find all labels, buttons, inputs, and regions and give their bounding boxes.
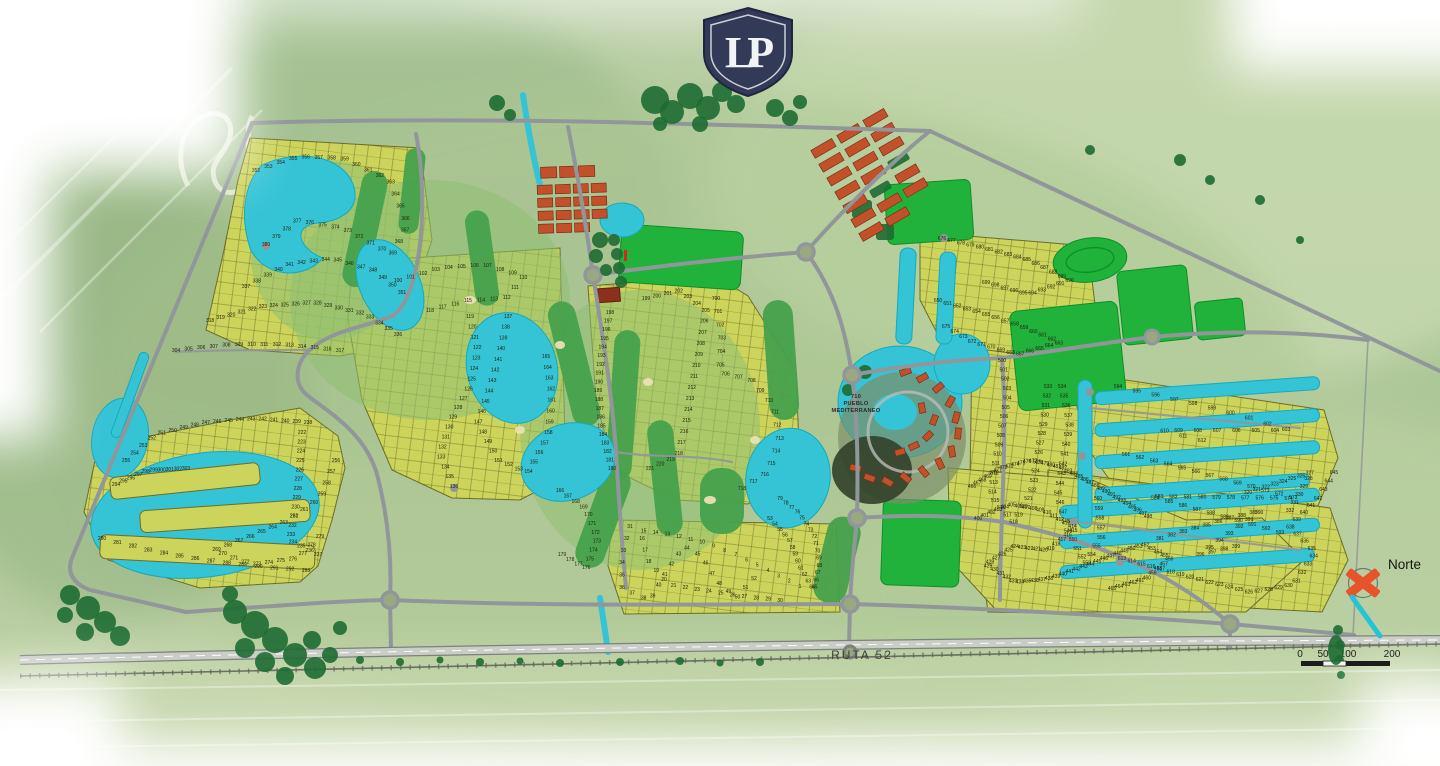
- lot-number: 112: [503, 295, 511, 301]
- lot-number: 308: [222, 342, 231, 348]
- lot-number: 422: [1025, 546, 1034, 552]
- lot-number: 123: [472, 356, 481, 362]
- lot-number: 251: [158, 431, 167, 437]
- lot-number: 569: [1233, 480, 1242, 486]
- lot-number: 615: [1137, 561, 1146, 567]
- lot-number: 57: [787, 538, 793, 544]
- flag-marker: [624, 250, 627, 261]
- lot-number: 76: [795, 510, 801, 516]
- lot-number: 25: [718, 591, 724, 597]
- lot-number: 521: [1024, 496, 1033, 502]
- lot-number: 624: [1225, 585, 1234, 591]
- lot-number: 9: [712, 544, 715, 550]
- lot-number: 532: [1043, 394, 1052, 400]
- lot-number: 142: [491, 367, 500, 373]
- lot-number: 140: [497, 346, 506, 352]
- lot-number: 214: [684, 407, 693, 413]
- lot-number: 71: [813, 541, 819, 547]
- lot-number: 113: [490, 297, 498, 303]
- lot-number: 41: [662, 572, 668, 578]
- lot-number: 187: [596, 406, 605, 412]
- lot-number: 365: [396, 204, 405, 210]
- lot-number: 303: [182, 466, 191, 472]
- lot-number: 243: [247, 416, 256, 422]
- lot-number: 324: [270, 303, 279, 309]
- lot-number: 713: [775, 436, 784, 442]
- lot-number: 172: [591, 530, 600, 536]
- lot-number: 658: [1011, 322, 1020, 328]
- lot-number: 23: [694, 587, 700, 593]
- lot-number: 136: [450, 484, 459, 490]
- lot-number: 1: [799, 584, 802, 590]
- lot-number: 539: [1064, 432, 1073, 438]
- lot-number: 157: [540, 440, 549, 446]
- lot-number: 705: [716, 362, 725, 368]
- lot-number: 696: [1010, 288, 1019, 294]
- lot-number: 220: [656, 462, 665, 468]
- lot-number: 366: [401, 216, 410, 222]
- lot-number: 255: [122, 458, 131, 464]
- lot-number: 253: [139, 443, 148, 449]
- lot-number: 239: [293, 419, 302, 425]
- lot-number: 211: [690, 374, 698, 380]
- lot-number: 24: [706, 589, 712, 595]
- lot-number: 558: [1096, 516, 1105, 522]
- lot-number: 663: [1055, 340, 1064, 346]
- lot-number: 636: [1300, 539, 1309, 545]
- lot-number: 700: [712, 296, 721, 302]
- lot-number: 635: [1308, 546, 1317, 552]
- lot-number: 628: [1265, 587, 1274, 593]
- lot-number: 321: [1253, 487, 1262, 493]
- lot-number: 267: [235, 538, 244, 544]
- lot-number: 391: [1245, 517, 1254, 523]
- lot-number: 65: [812, 585, 818, 591]
- lot-number: 72: [812, 534, 818, 540]
- lot-number: 629: [1274, 585, 1283, 591]
- lot-number: 137: [504, 314, 513, 320]
- lot-number: 332: [1286, 508, 1295, 514]
- lot-number: 171: [588, 521, 597, 527]
- lot-number: 287: [207, 559, 216, 565]
- lot-number: 17: [642, 548, 648, 554]
- lot-number: 578: [1227, 495, 1236, 501]
- lot-number: 334: [375, 320, 384, 326]
- lot-number: 162: [547, 387, 556, 393]
- lot-number: 212: [688, 385, 697, 391]
- lot-number: 714: [772, 449, 781, 455]
- lot-number: 552: [1078, 555, 1087, 561]
- lot-number: 169: [579, 504, 588, 510]
- lot-number: 361: [364, 168, 373, 174]
- lot-number: 75: [799, 516, 805, 522]
- lot-number: 364: [391, 192, 400, 198]
- lot-number: 584: [1151, 495, 1160, 501]
- lot-number: 314: [298, 344, 307, 350]
- lot-number: 637: [1293, 532, 1302, 538]
- lot-number: 173: [593, 539, 602, 545]
- lot-number: 356: [302, 154, 311, 160]
- lot-number: 275: [277, 558, 286, 564]
- lot-number: 178: [566, 557, 575, 563]
- lot-number: 369: [389, 251, 398, 257]
- lot-number: 567: [1206, 473, 1215, 479]
- lot-number: 186: [597, 415, 606, 421]
- lot-number: 318: [206, 318, 215, 324]
- lot-number: 597: [1170, 397, 1179, 403]
- lot-number: 197: [604, 319, 613, 325]
- lot-number: 6: [745, 557, 748, 563]
- lot-number: 498: [1144, 514, 1153, 520]
- lot-number: 15: [641, 529, 647, 535]
- lot-number: 465: [1108, 586, 1117, 592]
- lot-number: 390: [1255, 510, 1264, 516]
- lot-number: 527: [1036, 441, 1045, 447]
- lot-number: 30: [777, 598, 783, 604]
- lot-number: 31: [627, 524, 633, 530]
- lot-number: 240: [281, 418, 290, 424]
- lot-number: 176: [582, 565, 591, 571]
- lot-number: 258: [322, 480, 331, 486]
- lot-number: 603: [1282, 427, 1291, 433]
- lot-number: 266: [246, 534, 255, 540]
- lot-number: 668: [1006, 350, 1015, 356]
- lot-number: 37: [629, 590, 635, 596]
- lot-number: 79: [777, 496, 783, 502]
- lot-number: 13: [665, 532, 671, 538]
- lot-number: 346: [345, 261, 354, 267]
- lot-number: 352: [252, 168, 261, 174]
- lot-number: 208: [697, 341, 706, 347]
- lot-number: 673: [959, 334, 968, 340]
- lot-number: 259: [318, 491, 327, 497]
- lot-number: 565: [1178, 465, 1187, 471]
- lot-number: 69: [816, 556, 822, 562]
- lot-number: 306: [197, 345, 206, 351]
- lot-number: 216: [680, 429, 689, 435]
- lot-number: 596: [1151, 393, 1160, 399]
- lot-number: 376: [306, 220, 315, 226]
- lot-number: 100: [394, 278, 403, 284]
- lot-number: 547: [1059, 510, 1068, 516]
- lot-number: 537: [1064, 413, 1073, 419]
- lot-number: 265: [257, 529, 266, 535]
- lot-number: 326: [292, 302, 301, 308]
- lot-number: 342: [297, 260, 306, 266]
- lot-number: 396: [1196, 552, 1205, 558]
- lot-number: 180: [608, 466, 617, 472]
- lot-number: 285: [175, 553, 184, 559]
- lot-number: 661: [1038, 333, 1047, 339]
- lot-number: 650: [934, 298, 943, 304]
- lot-number: 28: [754, 595, 760, 601]
- lot-number: 106: [470, 263, 479, 269]
- lot-number: 111: [511, 285, 519, 291]
- lot-number: 330: [335, 306, 344, 312]
- lot-number: 128: [454, 405, 463, 411]
- svg-text:710: 710: [851, 394, 861, 400]
- lot-number: 343: [310, 259, 319, 265]
- lot-number: 320: [227, 312, 236, 318]
- lot-number: 234: [289, 540, 298, 546]
- lot-number: 642: [1314, 496, 1323, 502]
- lot-number: 398: [1220, 547, 1229, 553]
- lot-number: 373: [344, 228, 353, 234]
- lot-number: 378: [283, 226, 292, 232]
- lot-number: 665: [1035, 346, 1044, 352]
- lot-number: 229: [293, 495, 302, 501]
- lot-number: 385: [1202, 522, 1211, 528]
- lot-number: 360: [352, 162, 361, 168]
- lot-number: 205: [702, 308, 711, 314]
- lot-number: 48: [716, 581, 722, 587]
- lot-number: 284: [160, 551, 169, 557]
- lot-number: 219: [666, 457, 675, 463]
- lot-number: 625: [1235, 587, 1244, 593]
- lot-number: 150: [489, 449, 498, 455]
- lot-number: 529: [1039, 422, 1048, 428]
- lot-number: 127: [459, 396, 468, 402]
- lot-number: 118: [426, 308, 434, 314]
- lot-number: 544: [1056, 481, 1065, 487]
- lot-number: 32: [624, 536, 630, 542]
- lot-number: 702: [716, 322, 725, 328]
- lot-number: 623: [1215, 582, 1224, 588]
- lot-number: 293: [302, 568, 311, 574]
- lot-number: 698: [991, 283, 1000, 289]
- lot-number: 672: [968, 339, 977, 345]
- lot-number: 608: [1194, 428, 1203, 434]
- lot-number: 707: [734, 375, 743, 381]
- lot-number: 704: [717, 349, 726, 355]
- lot-number: 610: [1160, 429, 1169, 435]
- lot-number: 151: [494, 458, 503, 464]
- lot-number: 557: [1097, 525, 1106, 531]
- lot-number: 110: [519, 275, 527, 281]
- lot-number: 685: [1023, 257, 1032, 263]
- norte-label: Norte: [1388, 557, 1421, 572]
- lot-number: 119: [466, 314, 474, 320]
- lot-number: 114: [477, 297, 485, 303]
- lot-number: 555: [1092, 544, 1101, 550]
- lot-number: 354: [277, 160, 286, 166]
- lot-number: 309: [235, 342, 244, 348]
- lot-number: 347: [357, 264, 366, 270]
- lot-number: 246: [213, 419, 222, 425]
- lot-number: 632: [1298, 570, 1307, 576]
- lot-number: 560: [1094, 496, 1103, 502]
- lot-number: 2: [788, 579, 791, 585]
- lot-number: 307: [210, 344, 219, 350]
- lot-number: 181: [606, 458, 615, 464]
- lot-number: 63: [806, 578, 812, 584]
- lot-number: 523: [1030, 478, 1039, 484]
- lot-number: 125: [468, 376, 477, 382]
- lot-number: 310: [248, 342, 257, 348]
- lot-number: 678: [957, 240, 966, 246]
- lot-number: 506: [1000, 414, 1009, 420]
- lot-number: 202: [675, 288, 684, 294]
- lot-number: 690: [1065, 278, 1074, 284]
- lot-number: 655: [982, 312, 991, 318]
- lot-number: 193: [597, 353, 606, 359]
- lot-number: 330: [1295, 492, 1304, 498]
- lot-number: 651: [943, 301, 952, 307]
- lot-number: 148: [479, 429, 488, 435]
- lot-number: 370: [378, 247, 387, 253]
- lot-number: 316: [323, 347, 332, 353]
- lot-number: 509: [995, 442, 1004, 448]
- lot-number: 185: [597, 423, 606, 429]
- svg-text:0: 0: [1297, 649, 1303, 660]
- lot-number: 109: [508, 271, 517, 277]
- lot-number: 271: [230, 555, 239, 561]
- lot-number: 397: [1208, 549, 1217, 555]
- lot-number: 20: [661, 577, 667, 583]
- svg-text:200: 200: [1384, 649, 1401, 660]
- lot-number: 575: [1270, 496, 1279, 502]
- lot-number: 387: [1226, 516, 1235, 522]
- lot-number: 230: [291, 504, 300, 510]
- lot-number: 67: [815, 570, 821, 576]
- lot-number: 244: [236, 417, 245, 423]
- lot-number: 510: [993, 452, 1002, 458]
- lot-number: 62: [802, 572, 808, 578]
- lot-number: 124: [470, 366, 479, 372]
- lot-number: 379: [272, 234, 281, 240]
- lot-number: 711: [771, 410, 779, 416]
- lot-number: 282: [129, 544, 138, 550]
- lot-number: 135: [446, 474, 455, 480]
- lot-number: 524: [1031, 469, 1040, 475]
- lot-number: 105: [457, 264, 466, 270]
- lot-number: 250: [169, 428, 178, 434]
- lot-number: 677: [947, 238, 956, 244]
- lot-number: 699: [982, 280, 991, 286]
- lot-number: 645: [1330, 470, 1339, 476]
- lot-number: 43: [676, 551, 682, 557]
- lot-number: 238: [304, 420, 313, 426]
- lot-number: 156: [535, 450, 544, 456]
- lot-number: 561: [1122, 452, 1131, 458]
- lot-number: 363: [387, 180, 396, 186]
- lot-number: 329: [324, 303, 333, 309]
- lot-number: 657: [1001, 318, 1010, 324]
- lot-number: 21: [671, 583, 677, 589]
- lot-number: 228: [294, 486, 303, 492]
- lot-number: 351: [398, 290, 407, 296]
- lot-number: 514: [988, 490, 997, 496]
- lot-number: 568: [1219, 477, 1228, 483]
- lot-number: 199: [642, 296, 651, 302]
- lot-number: 562: [1136, 455, 1145, 461]
- lot-number: 614: [1128, 559, 1137, 565]
- lot-number: 101: [406, 274, 415, 280]
- lot-number: 515: [991, 498, 1000, 504]
- lot-number: 371: [367, 240, 376, 246]
- lot-number: 563: [1150, 458, 1159, 464]
- lot-number: 712: [773, 423, 782, 429]
- lot-number: 179: [558, 552, 567, 558]
- lot-number: 660: [1029, 329, 1038, 335]
- lot-number: 526: [1035, 450, 1044, 456]
- lot-number: 344: [322, 257, 331, 263]
- lot-number: 367: [401, 228, 410, 234]
- lot-number: 147: [474, 420, 483, 426]
- lot-number: 286: [191, 556, 200, 562]
- lot-number: 599: [1208, 406, 1217, 412]
- lot-number: 554: [1087, 552, 1096, 558]
- lot-number: 372: [355, 234, 364, 240]
- lot-number: 52: [751, 576, 757, 582]
- lot-number: 312: [273, 342, 282, 348]
- lot-number: 73: [808, 528, 814, 534]
- lot-number: 505: [1002, 405, 1011, 411]
- lot-number: 224: [297, 449, 306, 455]
- lot-number: 39: [650, 593, 656, 599]
- lot-number: 581: [1184, 495, 1193, 501]
- lot-number: 154: [524, 469, 533, 475]
- lot-number: 170: [584, 512, 593, 518]
- lot-number: 652: [953, 304, 962, 310]
- lot-number: 280: [98, 536, 107, 542]
- lot-number: 206: [700, 319, 709, 325]
- lot-number: 374: [331, 225, 340, 231]
- lot-number: 192: [596, 362, 605, 368]
- lot-number: 50: [735, 594, 741, 600]
- lot-number: 51: [743, 585, 749, 591]
- lot-number: 198: [606, 310, 615, 316]
- lot-number: 29: [765, 597, 771, 603]
- lp-shield-logo: LP: [700, 5, 796, 99]
- lot-number: 592: [1262, 526, 1271, 532]
- lot-number: 349: [379, 275, 388, 281]
- lot-number: 701: [714, 309, 723, 315]
- lot-number: 292: [286, 567, 295, 573]
- lot-number: 305: [184, 347, 193, 353]
- lot-number: 274: [265, 560, 274, 566]
- lot-number: 18: [646, 559, 652, 565]
- lot-number: 5: [756, 563, 759, 569]
- clubhouse: [598, 287, 621, 303]
- lot-number: 16: [639, 536, 645, 542]
- lot-number: 501: [1000, 367, 1009, 373]
- lot-number: 566: [1192, 469, 1201, 475]
- lot-number: 115: [464, 298, 472, 304]
- lot-number: 670: [987, 345, 996, 351]
- lot-number: 324: [1279, 479, 1288, 485]
- lot-number: 619: [1176, 572, 1185, 578]
- lot-number: 357: [315, 155, 324, 161]
- lot-number: 551: [1073, 546, 1082, 552]
- lot-number: 279: [316, 534, 325, 540]
- lot-number: 695: [1019, 291, 1028, 297]
- lot-number: 638: [1286, 524, 1295, 530]
- lot-number: 536: [1062, 403, 1071, 409]
- lot-number: 249: [180, 425, 189, 431]
- lot-number: 44: [684, 546, 690, 552]
- lot-number: 576: [1256, 496, 1265, 502]
- lot-number: 117: [439, 305, 447, 311]
- lot-number: 126: [464, 387, 473, 393]
- lot-number: 130: [445, 424, 454, 430]
- lot-number: 507: [998, 424, 1007, 430]
- lot-number: 14: [653, 530, 659, 536]
- lot-number: 601: [1245, 416, 1254, 422]
- lot-number: 252: [148, 436, 157, 442]
- lot-number: 177: [574, 562, 583, 568]
- lot-number: 223: [297, 439, 306, 445]
